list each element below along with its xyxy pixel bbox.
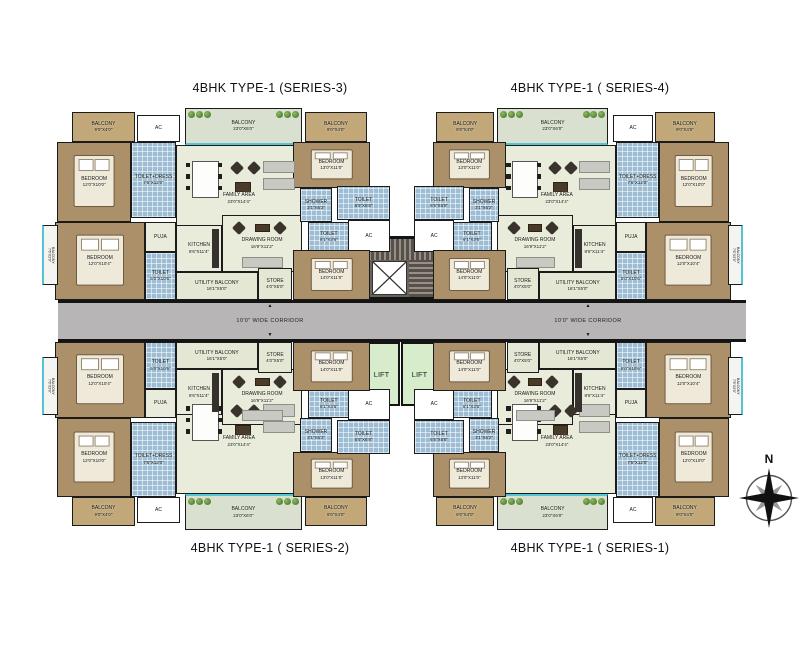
room-label: TOILET6'5"X6'8"	[430, 197, 448, 209]
plant-icon	[508, 111, 515, 118]
unit-series-4-balcony-main: BALCONY23'0"X6'0"	[497, 108, 608, 145]
unit-series-4-bedroom-d: BEDROOM14'0"X11'0"	[433, 250, 506, 300]
chair-icon	[186, 186, 191, 191]
tv-unit-icon	[235, 425, 251, 435]
chair-icon	[218, 186, 223, 191]
room-label: SHOWER3'1"X6'2"	[473, 199, 496, 211]
room-label: BEDROOM12'0"X10'4"	[675, 255, 701, 267]
unit-series-3-toilet-bot: TOILET6'1"X3'6"	[308, 222, 350, 252]
room-label: PUJA	[154, 400, 167, 407]
unit-series-2-bedroom-c: BEDROOM12'0"X10'4"	[55, 342, 145, 418]
unit-series-1-balcony-main: BALCONY23'0"X6'0"	[497, 494, 608, 530]
sofa-icon	[516, 410, 555, 421]
room-label: AC	[630, 507, 637, 514]
plant-icon	[204, 111, 211, 118]
unit-series-3-toilet-dress: TOILET+DRESS7'6"X12'0"	[131, 142, 176, 218]
unit-series-2-shower: SHOWER3'1"X6'2"	[300, 418, 332, 451]
sofa-icon	[579, 161, 609, 174]
unit-series-1-toilet-bot: TOILET6'1"X3'6"	[452, 389, 492, 418]
plant-icon	[204, 498, 211, 505]
unit-series-4-puja: PUJA	[616, 222, 645, 252]
room-label: TOILET5'0"X10'6"	[150, 270, 170, 282]
tv-unit-icon	[255, 224, 269, 233]
room-label: UTILITY BALCONY16'1"X5'0"	[556, 350, 600, 362]
compass-rose-icon	[739, 468, 799, 528]
chair-icon	[506, 163, 511, 168]
unit-series-4-toilet-dress: TOILET+DRESS7'6"X12'0"	[616, 142, 658, 218]
room-label: BEDROOM12'0"X10'0"	[681, 451, 707, 463]
unit-series-3-store: STORE4'0"X5'0"	[258, 268, 292, 300]
chair-icon	[506, 186, 511, 191]
unit-series-3-puja: PUJA	[145, 222, 176, 252]
room-label: BALCONY7'6"X3'0"	[731, 378, 739, 395]
unit-series-4-toilet-bot: TOILET6'1"X3'6"	[452, 222, 492, 252]
chair-icon	[218, 163, 223, 168]
armchair-icon	[272, 221, 286, 235]
plant-icon	[590, 498, 597, 505]
plant-icon	[598, 111, 605, 118]
room-label: BEDROOM14'0"X11'0"	[456, 360, 482, 372]
armchair-icon	[545, 375, 559, 389]
chair-icon	[537, 163, 542, 168]
unit-series-3-balcony-side: BALCONY7'6"X3'0"	[42, 225, 58, 285]
unit-series-4-bedroom-c: BEDROOM12'0"X10'4"	[646, 222, 731, 300]
room-label: BALCONY9'0"X4'0"	[324, 121, 348, 133]
arrow-up-icon: ▲	[268, 304, 273, 309]
room-label: UTILITY BALCONY16'1"X5'0"	[195, 350, 239, 362]
unit-series-4: BALCONY9'0"X4'0"ACBALCONY23'0"X6'0"BALCO…	[433, 100, 745, 300]
sofa-icon	[263, 178, 295, 191]
room-label: BALCONY9'0"X4'0"	[92, 505, 116, 517]
plant-icon	[583, 498, 590, 505]
unit-series-2-balcony-corner-outer: BALCONY9'0"X4'0"	[72, 497, 135, 526]
sofa-icon	[579, 404, 609, 416]
room-label: FAMILY AREA23'0"X14'4"	[223, 192, 255, 204]
room-label: BALCONY7'6"X3'0"	[47, 378, 55, 395]
chair-icon	[537, 174, 542, 179]
tv-unit-icon	[255, 378, 269, 386]
armchair-icon	[232, 221, 246, 235]
room-label: PUJA	[625, 400, 638, 407]
room-label: DRAWING ROOM16'9"X11'2"	[242, 391, 283, 403]
unit-series-3-balcony-corner-inner: BALCONY9'0"X4'0"	[305, 112, 367, 142]
unit-series-3-ac-top: AC	[137, 115, 180, 142]
plant-icon	[196, 498, 203, 505]
unit-series-1-shower: SHOWER3'1"X6'2"	[469, 418, 499, 451]
unit-series-4-store: STORE4'0"X5'0"	[507, 268, 539, 300]
plant-icon	[516, 498, 523, 505]
arrow-up-icon: ▲	[586, 304, 591, 309]
unit-series-4-drawing-room: DRAWING ROOM16'9"X11'2"	[497, 215, 573, 272]
unit-series-3-shower: SHOWER3'1"X6'2"	[300, 188, 332, 222]
corridor: ▲ 10'0" WIDE CORRIDOR ▼ ▲ 10'0" WIDE COR…	[58, 300, 746, 342]
chair-icon	[506, 174, 511, 179]
room-label: BALCONY23'0"X6'0"	[541, 506, 565, 518]
unit-series-2-balcony-corner-inner: BALCONY9'0"X4'0"	[305, 497, 367, 526]
room-label: BEDROOM13'0"X11'0"	[319, 468, 345, 480]
room-label: TOILET+DRESS7'6"X12'0"	[619, 174, 657, 186]
tv-unit-icon	[528, 378, 542, 386]
room-label: BEDROOM12'0"X10'4"	[87, 255, 113, 267]
plant-icon	[276, 111, 283, 118]
room-label: BALCONY23'0"X6'0"	[541, 120, 565, 132]
unit-series-4-toilet-d: TOILET5'0"X10'6"	[616, 252, 645, 300]
unit-series-1-toilet-top: TOILET6'5"X6'8"	[414, 420, 464, 453]
room-label: BEDROOM13'0"X11'0"	[456, 159, 482, 171]
sofa-icon	[516, 257, 555, 268]
unit-series-1-puja: PUJA	[616, 389, 645, 418]
corridor-label-right: ▲ 10'0" WIDE CORRIDOR ▼	[543, 303, 633, 339]
room-label: KITCHEN8'6"X11'4"	[188, 386, 210, 398]
title-series-3: 4BHK TYPE-1 (SERIES-3)	[100, 81, 440, 95]
room-label: AC	[155, 125, 162, 132]
unit-series-1-ac-core: AC	[414, 389, 454, 420]
stair-landing-icon	[372, 261, 407, 295]
plant-icon	[500, 498, 507, 505]
chair-icon	[506, 418, 511, 423]
room-label: KITCHEN8'6"X11'4"	[584, 242, 606, 254]
room-label: SHOWER3'1"X6'2"	[305, 199, 328, 211]
unit-series-2-ac-top: AC	[137, 497, 180, 523]
unit-series-1-bedroom-b: BEDROOM13'0"X11'0"	[433, 452, 506, 497]
room-label: BEDROOM12'0"X10'0"	[81, 176, 107, 188]
arrow-down-icon: ▼	[268, 333, 273, 338]
unit-series-3-utility-balcony: UTILITY BALCONY16'1"X5'0"	[176, 272, 258, 300]
unit-series-3-drawing-room: DRAWING ROOM16'9"X11'2"	[222, 215, 302, 272]
room-label: BEDROOM13'0"X11'0"	[319, 159, 345, 171]
stair-treads-icon	[409, 260, 436, 297]
unit-series-3-ac-core: AC	[348, 220, 390, 252]
kitchen-counter-icon	[575, 229, 582, 269]
unit-series-2-utility-balcony: UTILITY BALCONY16'1"X5'0"	[176, 342, 258, 369]
room-label: KITCHEN8'6"X11'4"	[584, 386, 606, 398]
room-label: TOILET6'1"X3'6"	[320, 231, 338, 243]
room-label: TOILET6'1"X3'6"	[463, 398, 481, 410]
unit-series-2-toilet-dress: TOILET+DRESS7'6"X12'0"	[131, 422, 176, 496]
plant-icon	[284, 111, 291, 118]
room-label: BEDROOM12'0"X10'4"	[87, 374, 113, 386]
room-label: BALCONY7'6"X3'0"	[47, 247, 55, 264]
room-label: TOILET5'0"X10'6"	[150, 359, 170, 371]
unit-series-4-toilet-top: TOILET6'5"X6'8"	[414, 186, 464, 220]
unit-series-2-ac-core: AC	[348, 389, 390, 420]
unit-series-3-bedroom-b: BEDROOM13'0"X11'0"	[293, 142, 370, 188]
unit-series-4-ac-top: AC	[613, 115, 654, 142]
chair-icon	[218, 418, 223, 423]
room-label: PUJA	[154, 234, 167, 241]
plant-icon	[292, 111, 299, 118]
chair-icon	[218, 429, 223, 434]
room-label: AC	[365, 233, 372, 240]
unit-series-1-bedroom-d: BEDROOM14'0"X11'0"	[433, 342, 506, 391]
corridor-label: 10'0" WIDE CORRIDOR	[236, 318, 303, 324]
corridor-label-left: ▲ 10'0" WIDE CORRIDOR ▼	[225, 303, 315, 339]
unit-series-2: BALCONY9'0"X4'0"ACBALCONY23'0"X6'0"BALCO…	[40, 342, 370, 538]
corridor-label: 10'0" WIDE CORRIDOR	[554, 318, 621, 324]
unit-series-1-utility-balcony: UTILITY BALCONY16'1"X5'0"	[539, 342, 616, 369]
unit-series-3-balcony-corner-outer: BALCONY9'0"X4'0"	[72, 112, 135, 142]
unit-series-2-store: STORE4'0"X5'0"	[258, 342, 292, 373]
room-label: DRAWING ROOM16'9"X11'2"	[242, 237, 283, 249]
arrow-down-icon: ▼	[586, 333, 591, 338]
room-label: AC	[155, 507, 162, 514]
room-label: STORE4'0"X5'0"	[514, 352, 532, 364]
room-label: PUJA	[625, 234, 638, 241]
room-label: STORE4'0"X5'0"	[266, 278, 284, 290]
unit-series-4-ac-core: AC	[414, 220, 454, 252]
unit-series-4-bedroom-a: BEDROOM12'0"X10'0"	[659, 142, 729, 222]
kitchen-counter-icon	[575, 373, 582, 412]
sofa-icon	[579, 178, 609, 191]
unit-series-2-puja: PUJA	[145, 389, 176, 418]
chair-icon	[186, 418, 191, 423]
room-label: SHOWER3'1"X6'2"	[305, 429, 328, 441]
unit-series-1-toilet-dress: TOILET+DRESS7'6"X12'0"	[616, 422, 658, 496]
unit-series-2-toilet-d: TOILET5'0"X10'6"	[145, 342, 176, 389]
unit-series-1-balcony-corner-outer: BALCONY9'0"X4'0"	[655, 497, 715, 526]
room-label: UTILITY BALCONY16'1"X5'0"	[556, 280, 600, 292]
plant-icon	[292, 498, 299, 505]
plant-icon	[188, 111, 195, 118]
kitchen-counter-icon	[212, 373, 219, 412]
armchair-icon	[545, 221, 559, 235]
room-label: TOILET6'5"X6'8"	[430, 431, 448, 443]
room-label: TOILET6'5"X6'8"	[355, 431, 373, 443]
room-label: TOILET+DRESS7'6"X12'0"	[135, 453, 173, 465]
sofa-icon	[263, 421, 295, 433]
room-label: FAMILY AREA23'0"X14'4"	[541, 435, 573, 447]
floor-plan: 4BHK TYPE-1 (SERIES-3) 4BHK TYPE-1 ( SER…	[0, 0, 800, 650]
dining-table-icon	[192, 161, 219, 199]
room-label: AC	[431, 401, 438, 408]
plant-icon	[508, 498, 515, 505]
room-label: AC	[365, 401, 372, 408]
unit-series-2-drawing-room: DRAWING ROOM16'9"X11'2"	[222, 369, 302, 425]
room-label: UTILITY BALCONY16'1"X5'0"	[195, 280, 239, 292]
room-label: SHOWER3'1"X6'2"	[473, 429, 496, 441]
room-label: BALCONY23'0"X6'0"	[231, 120, 255, 132]
tv-unit-icon	[553, 182, 568, 192]
kitchen-counter-icon	[212, 229, 219, 269]
armchair-icon	[548, 161, 562, 175]
room-label: BEDROOM12'0"X10'0"	[681, 176, 707, 188]
armchair-icon	[229, 161, 243, 175]
unit-series-1-bedroom-a: BEDROOM12'0"X10'0"	[659, 418, 729, 496]
north-label: N	[765, 452, 774, 466]
title-series-1: 4BHK TYPE-1 ( SERIES-1)	[420, 541, 760, 555]
plant-icon	[598, 498, 605, 505]
unit-series-3-toilet-d: TOILET5'0"X10'6"	[145, 252, 176, 300]
room-label: BALCONY7'6"X3'0"	[731, 247, 739, 264]
unit-series-4-kitchen: KITCHEN8'6"X11'4"	[573, 225, 617, 272]
unit-series-1-balcony-corner-inner: BALCONY9'0"X4'0"	[436, 497, 495, 526]
unit-series-2-bedroom-b: BEDROOM13'0"X11'0"	[293, 452, 370, 497]
chair-icon	[537, 429, 542, 434]
tv-unit-icon	[553, 425, 568, 435]
unit-series-3-kitchen: KITCHEN8'6"X11'4"	[176, 225, 222, 272]
unit-series-3-bedroom-c: BEDROOM12'0"X10'4"	[55, 222, 145, 300]
tv-unit-icon	[235, 182, 251, 192]
room-label: BEDROOM12'0"X10'0"	[81, 451, 107, 463]
unit-series-1: BALCONY9'0"X4'0"ACBALCONY23'0"X6'0"BALCO…	[433, 342, 745, 538]
room-label: BALCONY9'0"X4'0"	[673, 505, 697, 517]
unit-series-3-toilet-top: TOILET6'5"X6'8"	[337, 186, 390, 220]
unit-series-1-balcony-side: BALCONY7'6"X3'0"	[728, 357, 743, 416]
unit-series-1-ac-top: AC	[613, 497, 654, 523]
unit-series-4-balcony-corner-outer: BALCONY9'0"X4'0"	[655, 112, 715, 142]
unit-series-4-balcony-side: BALCONY7'6"X3'0"	[728, 225, 743, 285]
unit-series-1-store: STORE4'0"X5'0"	[507, 342, 539, 373]
plant-icon	[516, 111, 523, 118]
chair-icon	[186, 406, 191, 411]
unit-series-2-toilet-bot: TOILET6'1"X3'6"	[308, 389, 350, 418]
chair-icon	[506, 429, 511, 434]
room-label: AC	[630, 125, 637, 132]
room-label: STORE4'0"X5'0"	[266, 352, 284, 364]
room-label: DRAWING ROOM16'9"X11'2"	[515, 237, 556, 249]
room-label: STORE4'0"X5'0"	[514, 278, 532, 290]
plant-icon	[276, 498, 283, 505]
room-label: AC	[431, 233, 438, 240]
room-label: BEDROOM13'0"X11'0"	[456, 468, 482, 480]
armchair-icon	[506, 375, 520, 389]
sofa-icon	[242, 410, 283, 421]
room-label: DRAWING ROOM16'9"X11'2"	[515, 391, 556, 403]
room-label: FAMILY AREA23'0"X14'4"	[541, 192, 573, 204]
plant-icon	[196, 111, 203, 118]
title-series-2: 4BHK TYPE-1 ( SERIES-2)	[100, 541, 440, 555]
room-label: TOILET+DRESS7'6"X12'0"	[135, 174, 173, 186]
room-label: FAMILY AREA23'0"X14'4"	[223, 435, 255, 447]
armchair-icon	[232, 375, 246, 389]
compass: N	[737, 452, 800, 564]
room-label: KITCHEN8'6"X11'4"	[188, 242, 210, 254]
room-label: BALCONY23'0"X6'0"	[231, 506, 255, 518]
title-series-4: 4BHK TYPE-1 ( SERIES-4)	[420, 81, 760, 95]
room-label: BALCONY9'0"X4'0"	[453, 505, 477, 517]
unit-series-2-balcony-side: BALCONY7'6"X3'0"	[42, 357, 58, 416]
room-label: BALCONY9'0"X4'0"	[673, 121, 697, 133]
room-label: TOILET6'1"X3'6"	[320, 398, 338, 410]
sofa-icon	[242, 257, 283, 268]
unit-series-3-bedroom-d: BEDROOM14'0"X11'0"	[293, 250, 370, 300]
unit-series-3-bedroom-a: BEDROOM12'0"X10'0"	[57, 142, 131, 222]
room-label: BEDROOM14'0"X11'0"	[319, 360, 345, 372]
chair-icon	[537, 186, 542, 191]
plant-icon	[188, 498, 195, 505]
room-label: BEDROOM14'0"X11'0"	[319, 269, 345, 281]
unit-series-4-utility-balcony: UTILITY BALCONY16'1"X5'0"	[539, 272, 616, 300]
room-label: TOILET6'5"X6'8"	[355, 197, 373, 209]
room-label: BALCONY9'0"X4'0"	[324, 505, 348, 517]
unit-series-1-toilet-d: TOILET5'0"X10'6"	[616, 342, 645, 389]
armchair-icon	[247, 161, 261, 175]
chair-icon	[186, 163, 191, 168]
unit-series-1-bedroom-c: BEDROOM12'0"X10'4"	[646, 342, 731, 418]
dining-table-icon	[512, 161, 537, 199]
armchair-icon	[272, 375, 286, 389]
tv-unit-icon	[528, 224, 542, 233]
plant-icon	[284, 498, 291, 505]
sofa-icon	[263, 161, 295, 174]
chair-icon	[186, 174, 191, 179]
chair-icon	[506, 406, 511, 411]
sofa-icon	[579, 421, 609, 433]
room-label: TOILET+DRESS7'6"X12'0"	[619, 453, 657, 465]
room-label: BALCONY9'0"X4'0"	[92, 121, 116, 133]
unit-series-2-toilet-top: TOILET6'5"X6'8"	[337, 420, 390, 453]
chair-icon	[186, 429, 191, 434]
unit-series-2-bedroom-d: BEDROOM14'0"X11'0"	[293, 342, 370, 391]
armchair-icon	[564, 161, 578, 175]
plant-icon	[590, 111, 597, 118]
chair-icon	[218, 174, 223, 179]
room-label: BALCONY9'0"X4'0"	[453, 121, 477, 133]
unit-series-4-balcony-corner-inner: BALCONY9'0"X4'0"	[436, 112, 495, 142]
unit-series-3: BALCONY9'0"X4'0"ACBALCONY23'0"X6'0"BALCO…	[40, 100, 370, 300]
unit-series-3-balcony-main: BALCONY23'0"X6'0"	[185, 108, 302, 145]
room-label: TOILET6'1"X3'6"	[463, 231, 481, 243]
room-label: BEDROOM12'0"X10'4"	[675, 374, 701, 386]
unit-series-2-bedroom-a: BEDROOM12'0"X10'0"	[57, 418, 131, 496]
unit-series-4-shower: SHOWER3'1"X6'2"	[469, 188, 499, 222]
unit-series-2-balcony-main: BALCONY23'0"X6'0"	[185, 494, 302, 530]
armchair-icon	[506, 221, 520, 235]
plant-icon	[500, 111, 507, 118]
room-label: TOILET5'0"X10'6"	[621, 270, 641, 282]
plant-icon	[583, 111, 590, 118]
room-label: TOILET5'0"X10'6"	[621, 359, 641, 371]
unit-series-4-bedroom-b: BEDROOM13'0"X11'0"	[433, 142, 506, 188]
room-label: BEDROOM14'0"X11'0"	[456, 269, 482, 281]
